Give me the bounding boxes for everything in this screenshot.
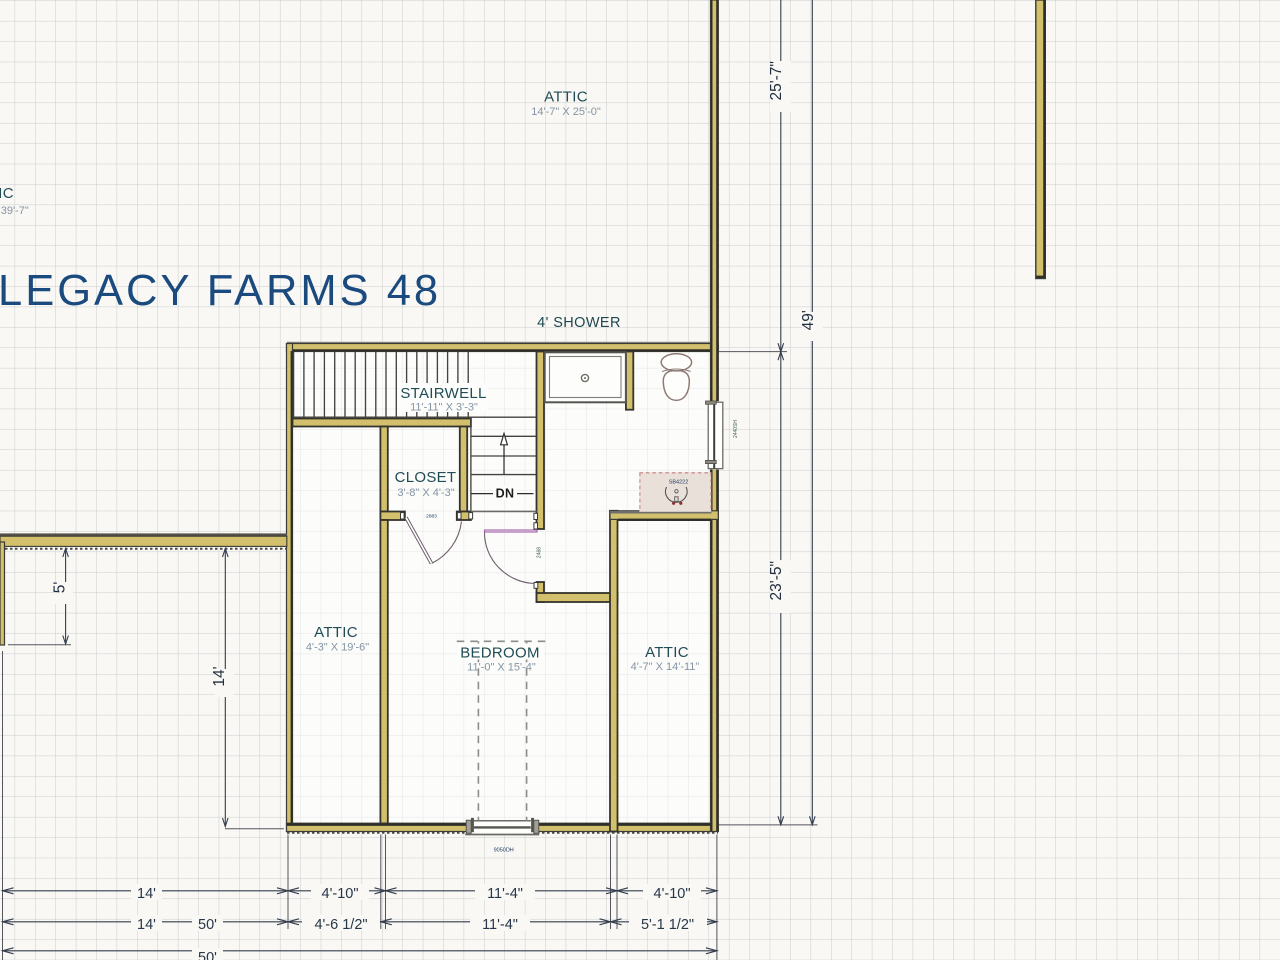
svg-text:LEGACY FARMS 48: LEGACY FARMS 48 — [0, 267, 441, 315]
svg-text:5': 5' — [52, 582, 69, 594]
svg-text:SB4222: SB4222 — [669, 479, 689, 485]
svg-text:14': 14' — [211, 666, 228, 686]
svg-text:ATTIC: ATTIC — [645, 644, 689, 661]
svg-text:14'-7" X 39'-7": 14'-7" X 39'-7" — [0, 205, 29, 217]
svg-text:STAIRWELL: STAIRWELL — [400, 385, 486, 402]
svg-text:4'-10": 4'-10" — [322, 886, 359, 902]
svg-text:4' SHOWER: 4' SHOWER — [537, 315, 621, 331]
svg-text:23'-5": 23'-5" — [768, 561, 785, 600]
svg-text:11'-4": 11'-4" — [482, 917, 518, 933]
svg-text:2883: 2883 — [426, 513, 437, 519]
svg-text:11'-11" X 3'-3": 11'-11" X 3'-3" — [410, 402, 478, 414]
svg-text:4'-7" X 14'-11": 4'-7" X 14'-11" — [631, 661, 700, 673]
svg-text:ATTIC: ATTIC — [544, 89, 588, 106]
svg-text:5'-1 1/2": 5'-1 1/2" — [641, 917, 694, 933]
svg-text:3'-8" X 4'-3": 3'-8" X 4'-3" — [397, 487, 454, 499]
svg-text:ATTIC: ATTIC — [0, 185, 14, 202]
svg-text:49': 49' — [800, 310, 817, 330]
svg-text:50': 50' — [198, 917, 217, 933]
svg-text:14'-7" X 25'-0": 14'-7" X 25'-0" — [531, 106, 601, 118]
svg-text:4'-3" X 19'-6": 4'-3" X 19'-6" — [306, 642, 369, 654]
svg-text:CLOSET: CLOSET — [395, 469, 457, 486]
svg-text:ATTIC: ATTIC — [314, 624, 358, 641]
svg-text:2440SH: 2440SH — [733, 420, 739, 438]
svg-text:BEDROOM: BEDROOM — [460, 645, 540, 662]
svg-text:11'-4": 11'-4" — [487, 886, 523, 902]
svg-text:DN: DN — [496, 487, 515, 501]
svg-text:2468: 2468 — [536, 547, 542, 558]
svg-text:25'-7": 25'-7" — [768, 61, 785, 100]
svg-text:50': 50' — [198, 950, 217, 960]
svg-text:14': 14' — [137, 917, 156, 933]
svg-text:14': 14' — [137, 886, 156, 902]
svg-text:9050DH: 9050DH — [494, 848, 514, 854]
svg-text:4'-6 1/2": 4'-6 1/2" — [314, 917, 367, 933]
svg-text:11'-0" X 15'-4": 11'-0" X 15'-4" — [467, 662, 536, 674]
svg-text:4'-10": 4'-10" — [654, 886, 691, 902]
